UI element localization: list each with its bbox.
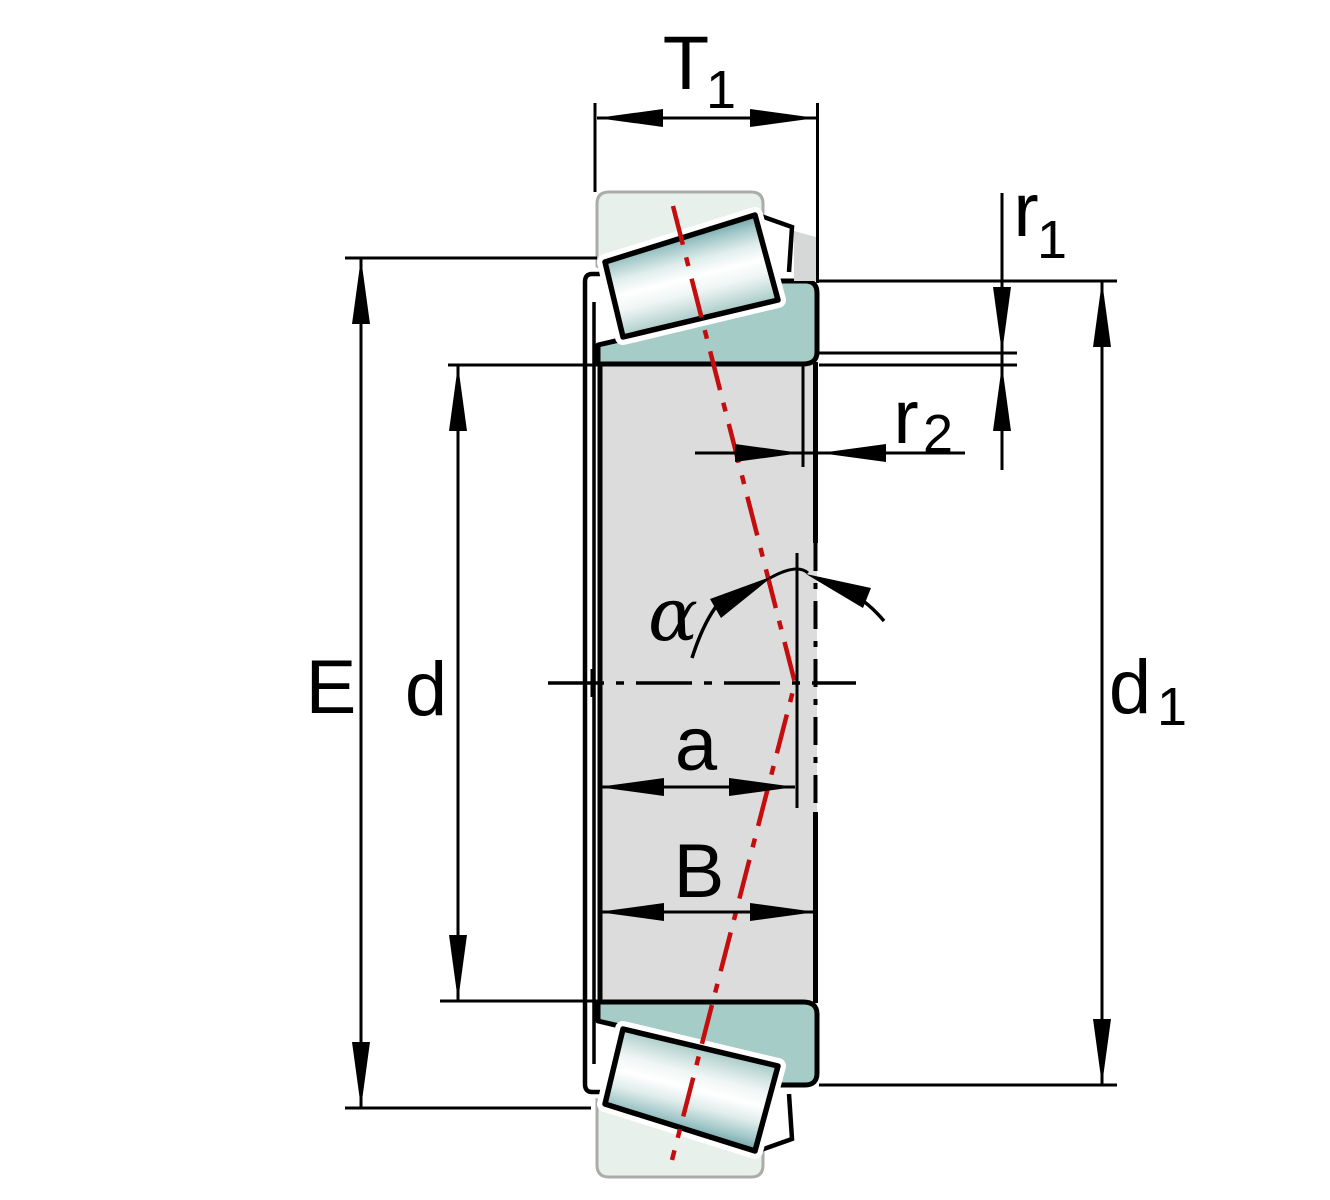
d-arrow-bottom [449,935,467,1001]
d1-label: d [1109,645,1151,730]
d1-arrow-top [1093,281,1111,347]
d1-arrow-bottom [1093,1019,1111,1085]
e-arrow-bottom [352,1042,370,1108]
d-label: d [405,647,447,732]
r1-label-sub: 1 [1037,210,1067,270]
r2-label: r [893,375,918,460]
d-arrow-top [449,365,467,431]
b-label: B [674,829,725,914]
e-arrow-top [352,258,370,324]
r1-arrow-up [993,365,1011,431]
e-label: E [306,645,357,730]
t1-arrow-left [597,109,663,127]
t1-label-sub: 1 [706,60,736,120]
a-label: a [675,702,718,787]
t1-arrow-right [750,109,816,127]
r2-arrow-left [820,444,886,462]
bearing-dimension-drawing: α T 1 E d d 1 [0,0,1330,1200]
t1-label: T [663,21,709,106]
r1-arrow-down [993,287,1011,353]
drawing-canvas: α T 1 E d d 1 [0,0,1330,1200]
rib-shoulder-sliver [794,231,816,281]
r2-label-sub: 2 [923,404,953,464]
d1-label-sub: 1 [1157,677,1187,737]
r1-label: r [1013,168,1038,253]
alpha-label: α [648,572,698,658]
